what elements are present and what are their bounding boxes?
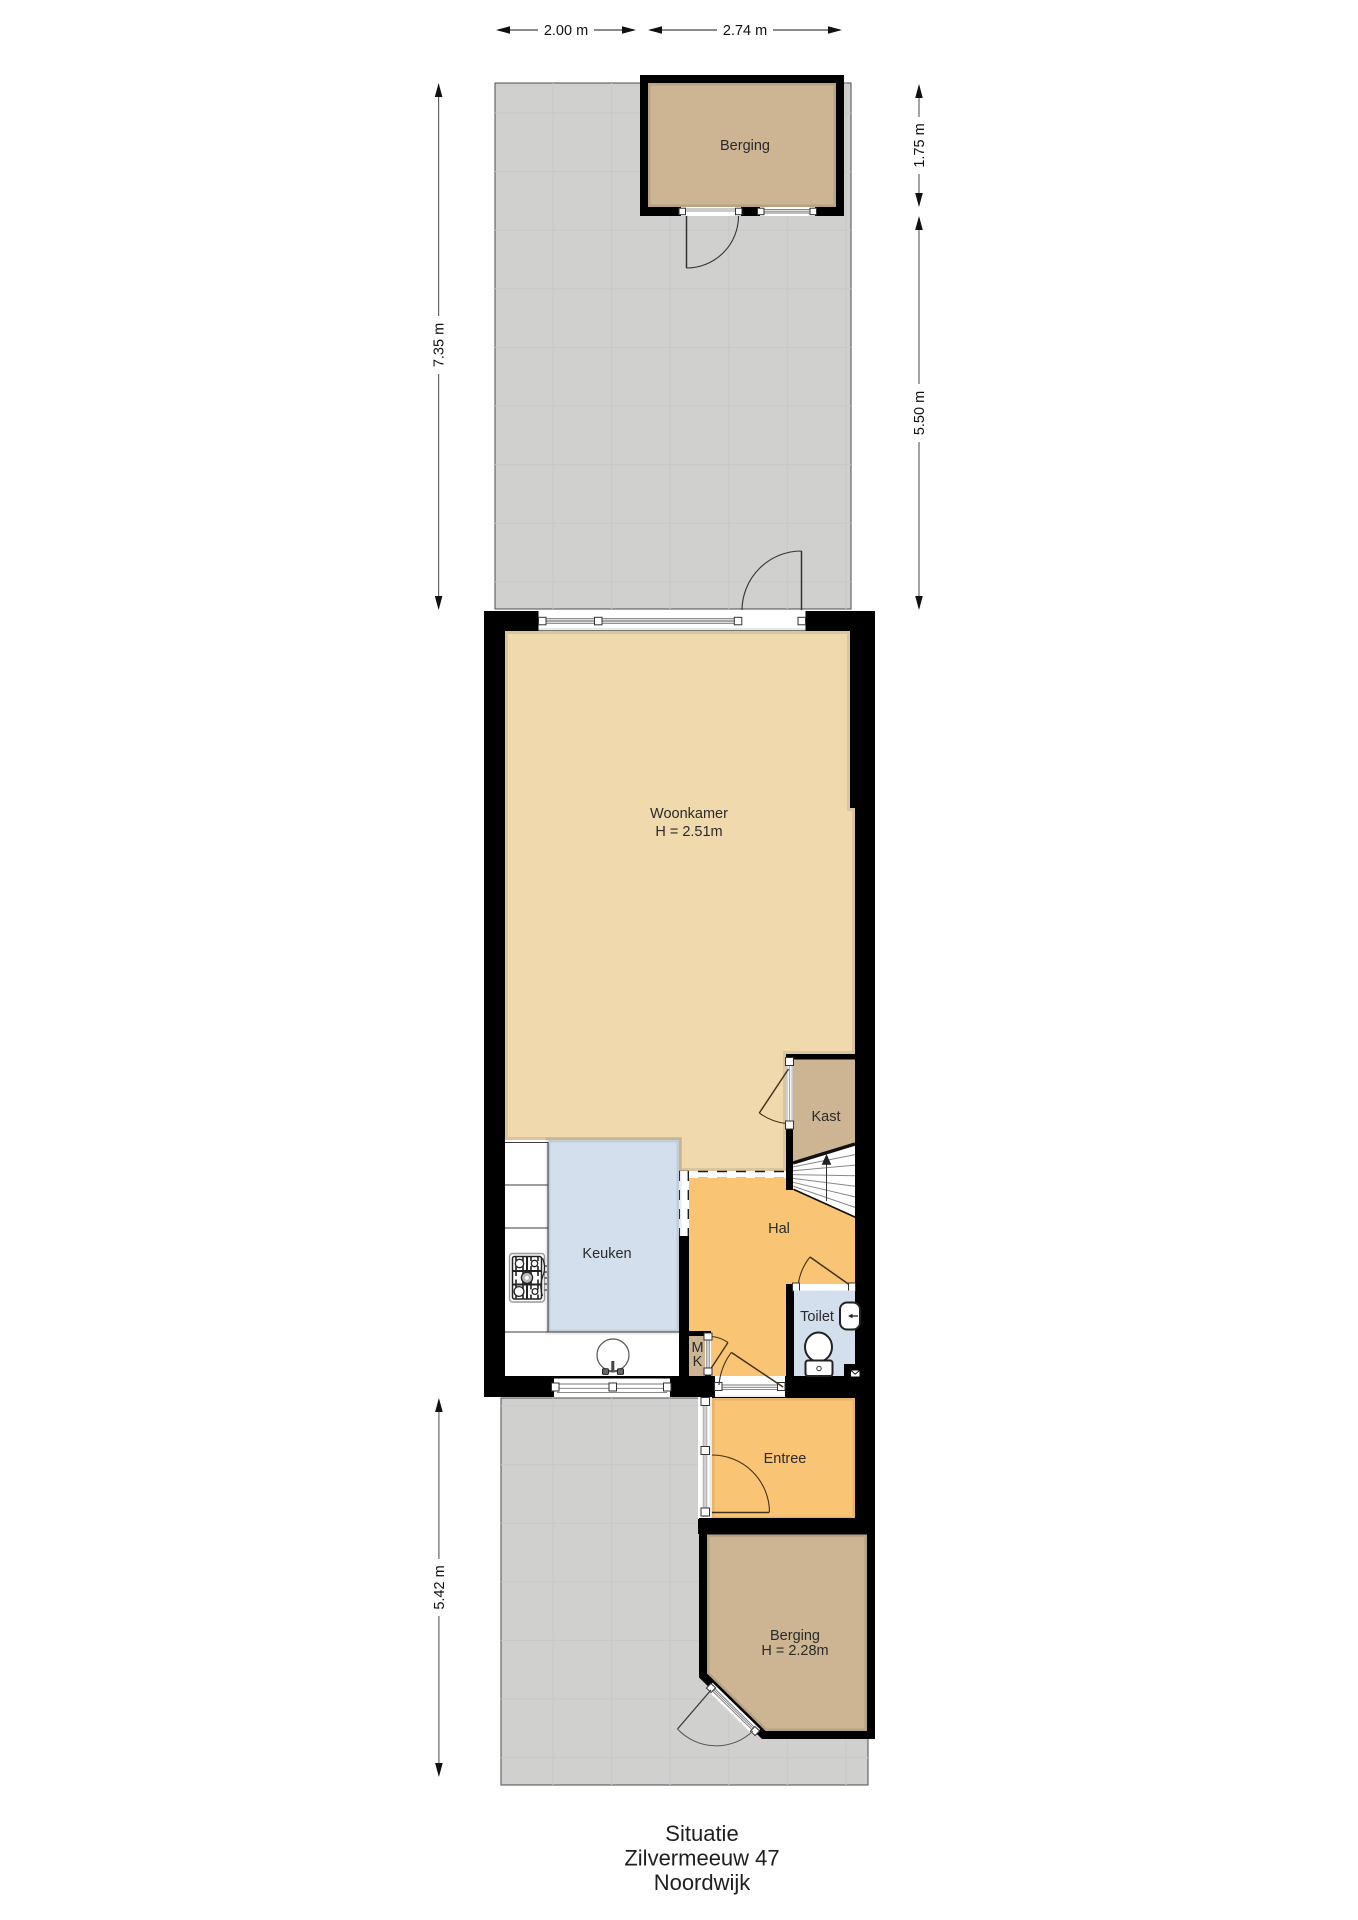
svg-text:Zilvermeeuw 47: Zilvermeeuw 47	[624, 1846, 779, 1871]
svg-text:H = 2.51m: H = 2.51m	[655, 824, 722, 840]
svg-text:Kast: Kast	[811, 1109, 840, 1125]
svg-text:Toilet: Toilet	[800, 1309, 834, 1325]
svg-text:Noordwijk: Noordwijk	[654, 1870, 752, 1895]
svg-text:2.74 m: 2.74 m	[723, 23, 767, 39]
svg-text:Entree: Entree	[764, 1451, 807, 1467]
svg-text:Situatie: Situatie	[665, 1821, 738, 1846]
svg-text:Berging: Berging	[770, 1628, 820, 1644]
svg-text:2.00 m: 2.00 m	[544, 23, 588, 39]
svg-text:7.35 m: 7.35 m	[432, 323, 448, 367]
svg-text:Woonkamer: Woonkamer	[650, 806, 728, 822]
svg-text:Hal: Hal	[768, 1221, 790, 1237]
svg-text:1.75 m: 1.75 m	[912, 123, 928, 167]
svg-text:K: K	[693, 1354, 703, 1370]
svg-text:5.50 m: 5.50 m	[912, 391, 928, 435]
svg-text:Keuken: Keuken	[582, 1246, 631, 1262]
svg-text:H = 2.28m: H = 2.28m	[761, 1643, 828, 1659]
svg-text:5.42 m: 5.42 m	[432, 1565, 448, 1609]
svg-text:Berging: Berging	[720, 138, 770, 154]
